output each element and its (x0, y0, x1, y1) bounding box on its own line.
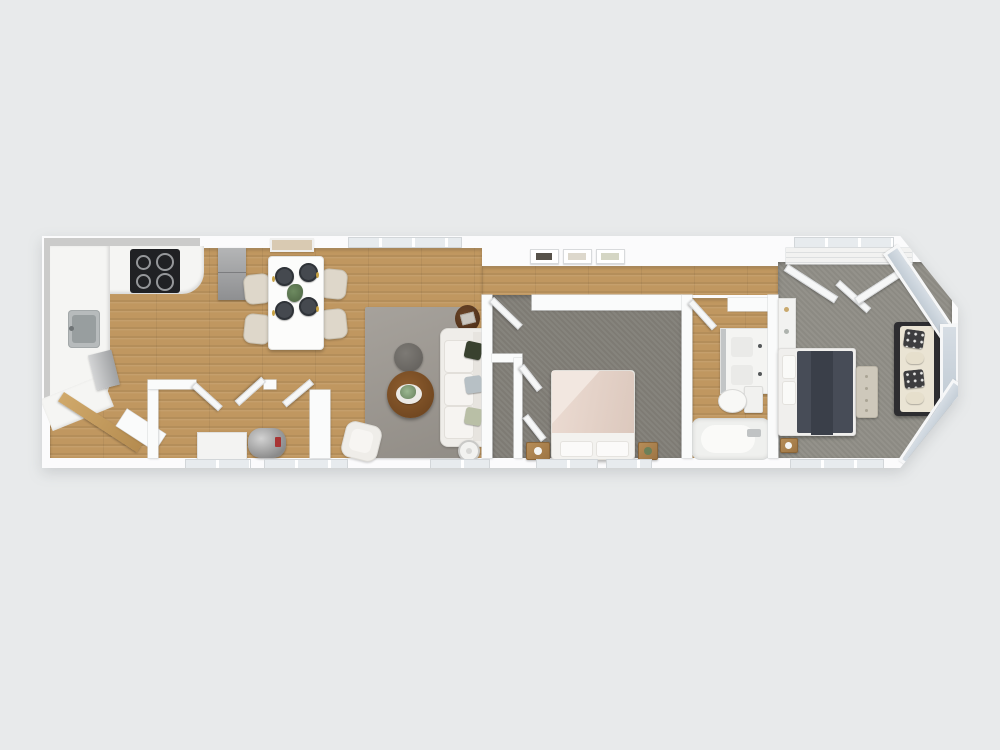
sink-faucet (69, 326, 74, 331)
bedroom2-lamp-left (534, 447, 542, 455)
window-bottom-living (430, 459, 490, 469)
bathroom-left-wall (682, 295, 692, 458)
kitchen-sink (68, 310, 100, 348)
bedroom2-nightstand-left (526, 442, 550, 460)
bench-button-3 (865, 399, 868, 402)
vanity-basin-2 (731, 365, 753, 385)
coffee-table-plant (400, 385, 416, 399)
window-bottom-hall-1 (185, 459, 251, 469)
master-pillow-2 (782, 381, 796, 405)
dresser-decor-2 (784, 329, 789, 334)
master-nightstand (780, 438, 798, 453)
burner-3 (136, 274, 151, 289)
cooktop (130, 249, 180, 293)
bathtub-faucet (747, 429, 761, 437)
bathroom-top-wall (728, 298, 768, 311)
bench-button-1 (865, 375, 868, 378)
sink-basin (72, 315, 96, 343)
bathtub (692, 418, 770, 460)
gold-cutlery-1 (272, 276, 275, 282)
bedroom2-nightstand-plant (644, 447, 652, 455)
closet-wall-b (148, 380, 196, 389)
gold-cutlery-4 (316, 306, 319, 312)
bedroom2-closet-wall (514, 358, 522, 458)
burner-2 (156, 253, 174, 271)
gold-cutlery-2 (316, 272, 319, 278)
master-throw-blanket (811, 351, 833, 435)
floor-lamp-pole (466, 448, 472, 454)
hall-art-frame-2 (563, 249, 592, 264)
closet-wall-a (148, 384, 158, 458)
place-setting-4 (299, 297, 318, 316)
render-canvas (0, 0, 1000, 750)
master-bed (778, 348, 856, 436)
hall-art-2-image (568, 253, 586, 260)
utility-appliance (197, 432, 247, 460)
burner-4 (156, 273, 174, 291)
master-loveseat (894, 322, 940, 416)
loveseat-bolster-1 (906, 352, 924, 364)
floor-hallway (482, 266, 778, 295)
refrigerator (218, 248, 246, 300)
window-bottom-master (790, 459, 884, 469)
hall-art-frame-3 (596, 249, 625, 264)
window-bottom-bedroom2-1 (536, 459, 598, 469)
gold-cutlery-3 (272, 310, 275, 316)
closet-wall-d (310, 390, 330, 458)
refrigerator-door-split (218, 272, 246, 273)
bench-button-2 (865, 387, 868, 390)
bedroom2-top-wall (532, 295, 682, 310)
loveseat-pillow-pattern-2 (903, 369, 925, 389)
throw-pillow-blue-gray (464, 375, 483, 394)
toilet-bowl (718, 389, 747, 413)
place-setting-2 (299, 263, 318, 282)
window-bottom-hall-2 (264, 459, 348, 469)
master-lamp (785, 442, 792, 449)
bedroom2-nightstand-right (638, 442, 658, 460)
master-pillow-1 (782, 355, 796, 379)
dresser-decor-1 (784, 307, 789, 312)
bedroom2-pillow-1 (560, 441, 593, 457)
window-top-master (794, 237, 894, 248)
vanity-faucet-2 (758, 372, 762, 376)
burner-1 (136, 255, 151, 270)
vanity-faucet-1 (758, 344, 762, 348)
water-heater-label (275, 437, 281, 447)
loveseat-bolster-2 (906, 392, 924, 404)
master-dresser (778, 298, 796, 350)
throw-pillow-dark-green (463, 340, 483, 360)
bathroom-vanity (720, 328, 770, 394)
vanity-basin-1 (731, 337, 753, 357)
hall-art-1-image (536, 253, 552, 260)
armchair-seat (348, 428, 375, 455)
hall-art-3-image (601, 253, 619, 260)
bedroom2-pillow-2 (596, 441, 629, 457)
dining-wall-art (270, 238, 314, 252)
round-side-table (394, 343, 423, 372)
master-bench (856, 366, 878, 418)
vanity-cabinet-edge (721, 329, 726, 393)
bedroom2-bed (551, 370, 635, 460)
hall-art-frame-1 (530, 249, 559, 264)
bench-button-4 (865, 409, 868, 412)
throw-pillow-sage (464, 407, 484, 427)
place-setting-3 (275, 301, 294, 320)
bedroom2-left-wall (482, 295, 492, 458)
water-heater (248, 428, 286, 458)
window-top-living (348, 237, 462, 248)
window-bottom-bedroom2-2 (606, 459, 652, 469)
master-left-wall (768, 295, 778, 458)
place-setting-1 (275, 267, 294, 286)
loveseat-pillow-pattern-1 (903, 329, 925, 350)
floorplan (42, 236, 958, 468)
